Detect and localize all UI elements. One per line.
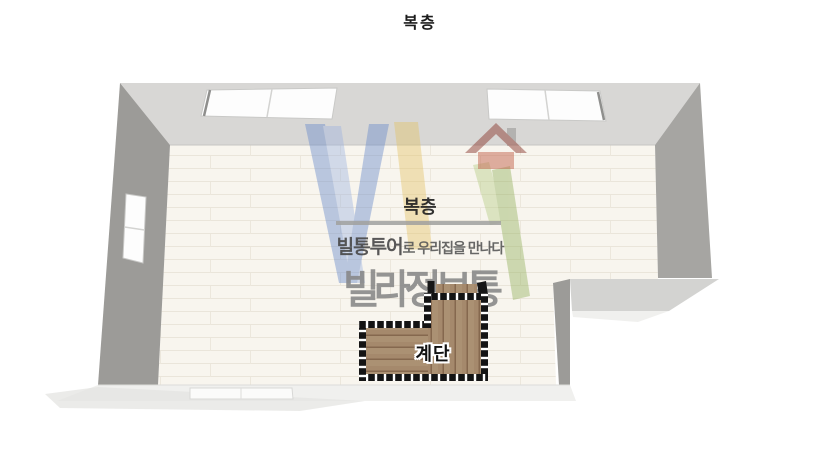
- railing-mid: [424, 293, 431, 328]
- staircase: [0, 0, 840, 472]
- railing-bottom: [359, 374, 488, 381]
- railing-top-lower: [359, 321, 425, 328]
- railing-right: [481, 293, 488, 381]
- railing-left: [359, 321, 366, 381]
- floorplan-viewer: 복층 복층 빌통투어로 우리집을 만나다 빌라정보통: [0, 0, 840, 472]
- stairs-label: 계단: [403, 340, 463, 366]
- railing-top-upper: [424, 293, 488, 300]
